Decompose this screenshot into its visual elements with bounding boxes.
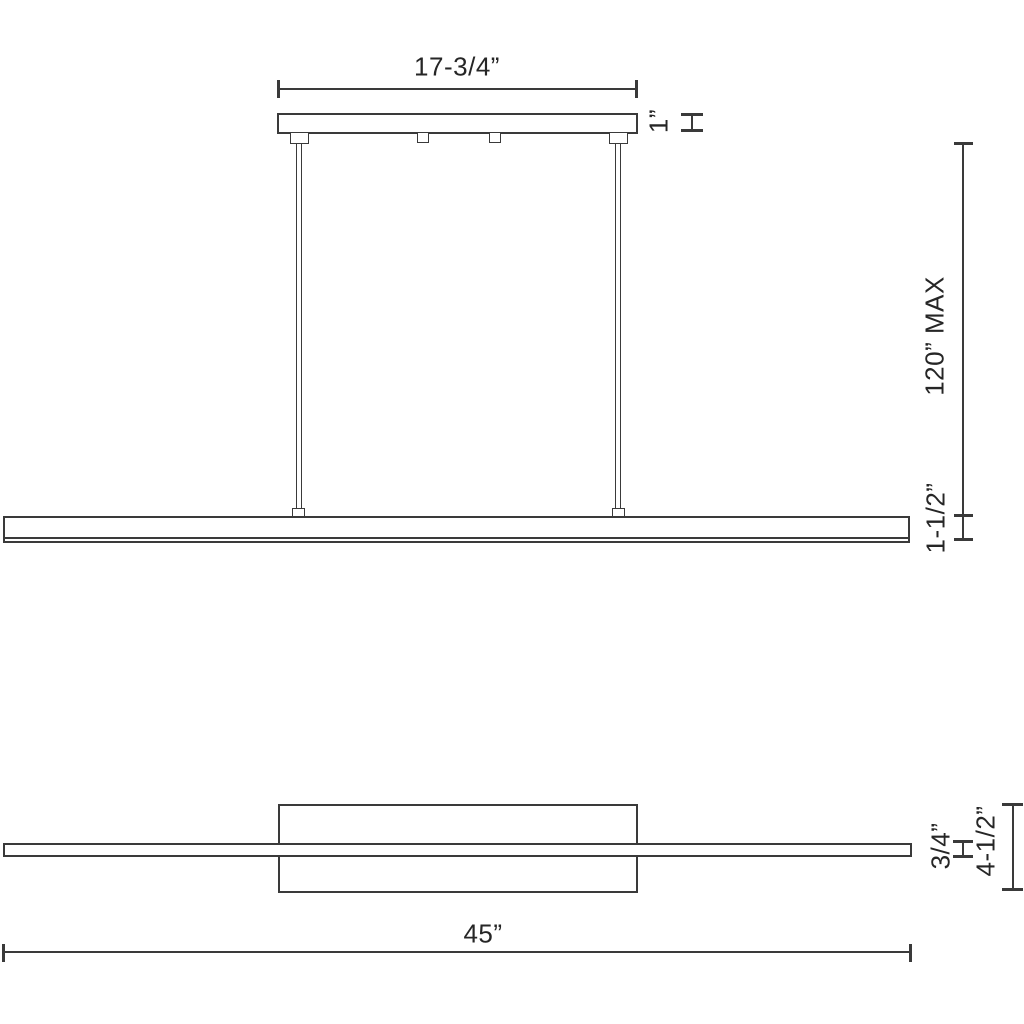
dim-label-fixture-length: 45” [463,919,502,950]
dimension-tick [954,514,973,517]
dimension-tick [1002,888,1023,891]
fixture-bar-profile [3,843,912,857]
canopy-mount-tab-right [489,132,501,143]
dimension-tick [954,538,973,541]
dimension-tick [635,80,638,98]
dim-label-bar-thickness: 3/4” [926,823,957,870]
ceiling-canopy [277,113,638,134]
dimension-line-suspension [962,143,964,541]
dimension-line-fixture-length [3,951,911,953]
suspension-cable-left [296,143,302,509]
fixture-bar-lens-line [4,537,909,539]
fixture-bar-front [3,516,910,543]
dim-label-suspension-max: 120” MAX [920,276,951,396]
suspension-cable-right [615,143,621,509]
dimension-tick [909,944,912,962]
dimension-line-canopy-width [278,88,637,90]
dimension-tick [681,129,703,132]
dimension-drawing: 17-3/4” 1” 120” MAX 1-1/2” [0,0,1024,1024]
dimension-tick [277,80,280,98]
dim-label-canopy-width: 17-3/4” [414,52,500,83]
dimension-tick [2,944,5,962]
dim-label-body-height: 4-1/2” [971,806,1002,877]
dim-label-canopy-height: 1” [644,109,675,133]
dim-label-fixture-height: 1-1/2” [921,483,952,554]
canopy-mount-tab-left [417,132,429,143]
dimension-line-body-height [1012,804,1014,890]
